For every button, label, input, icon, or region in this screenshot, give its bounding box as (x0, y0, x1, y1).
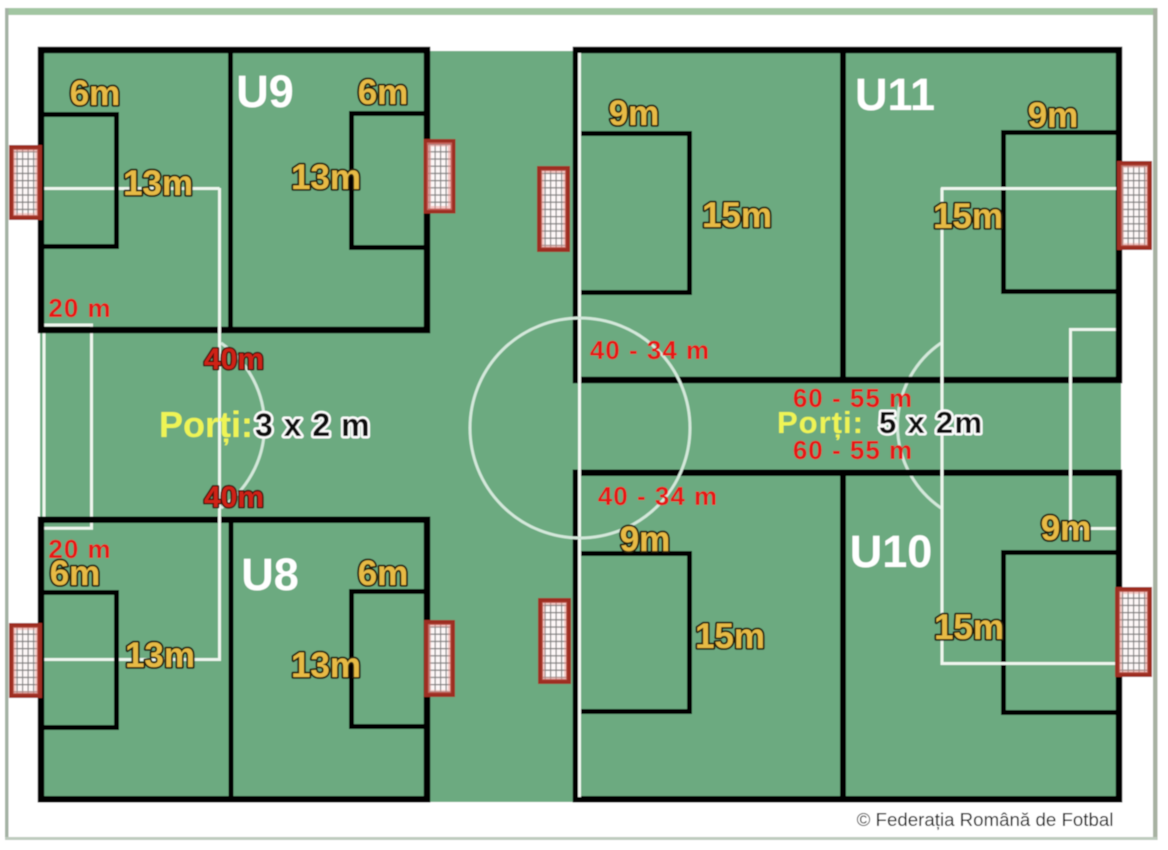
svg-text:13m: 13m (123, 164, 193, 203)
svg-text:40m: 40m (204, 343, 264, 376)
svg-text:15m: 15m (933, 197, 1003, 236)
svg-text:13m: 13m (125, 636, 195, 675)
svg-text:9m: 9m (1041, 509, 1092, 548)
svg-text:Porți:: Porți: (159, 404, 253, 446)
svg-text:U11: U11 (855, 69, 935, 120)
svg-text:6m: 6m (358, 73, 409, 112)
svg-text:20 m: 20 m (48, 293, 111, 323)
svg-text:60 - 55 m: 60 - 55 m (793, 435, 913, 465)
svg-text:9m: 9m (609, 94, 660, 133)
svg-text:40m: 40m (204, 481, 264, 514)
svg-text:U10: U10 (850, 526, 933, 577)
svg-text:U9: U9 (236, 66, 294, 117)
svg-text:15m: 15m (702, 196, 772, 235)
svg-text:3 x 2 m: 3 x 2 m (255, 407, 371, 443)
svg-text:13m: 13m (291, 158, 361, 197)
svg-text:40 - 34 m: 40 - 34 m (598, 481, 718, 511)
svg-text:9m: 9m (1028, 96, 1079, 135)
svg-text:6m: 6m (50, 554, 101, 593)
svg-text:15m: 15m (695, 617, 765, 656)
svg-text:6m: 6m (358, 554, 409, 593)
svg-text:9m: 9m (620, 520, 671, 559)
svg-text:40 - 34 m: 40 - 34 m (590, 335, 710, 365)
svg-text:15m: 15m (934, 608, 1004, 647)
svg-text:13m: 13m (291, 646, 361, 685)
svg-text:U8: U8 (241, 549, 299, 600)
svg-text:6m: 6m (70, 74, 121, 113)
svg-text:© Federația Română de Fotbal: © Federația Română de Fotbal (857, 809, 1114, 830)
